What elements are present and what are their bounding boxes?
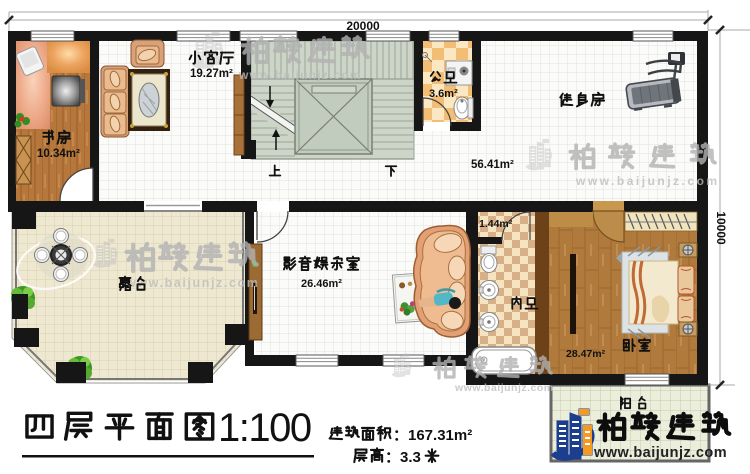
svg-text:3.6m²: 3.6m²: [429, 88, 458, 100]
svg-text:56.41m²: 56.41m²: [471, 159, 514, 171]
svg-text:10.34m²: 10.34m²: [37, 148, 80, 160]
svg-text:1.44m²: 1.44m²: [479, 218, 513, 230]
svg-text:：3.3: ：3.3: [385, 449, 421, 466]
svg-text:www.baijunjz.com: www.baijunjz.com: [593, 445, 727, 461]
svg-text:：167.31m²: ：167.31m²: [393, 427, 472, 444]
svg-text:28.47m²: 28.47m²: [566, 348, 606, 360]
svg-text:1:100: 1:100: [218, 406, 311, 450]
svg-text:19.27m²: 19.27m²: [190, 68, 233, 80]
svg-text:www.baijunjz.com: www.baijunjz.com: [454, 382, 554, 394]
svg-text:20000: 20000: [346, 19, 380, 33]
svg-text:10000: 10000: [714, 211, 728, 245]
svg-text:www.baijunjz.com: www.baijunjz.com: [238, 68, 362, 82]
svg-text:26.46m²: 26.46m²: [301, 278, 342, 290]
svg-text:www.baijunjz.com: www.baijunjz.com: [575, 174, 720, 188]
